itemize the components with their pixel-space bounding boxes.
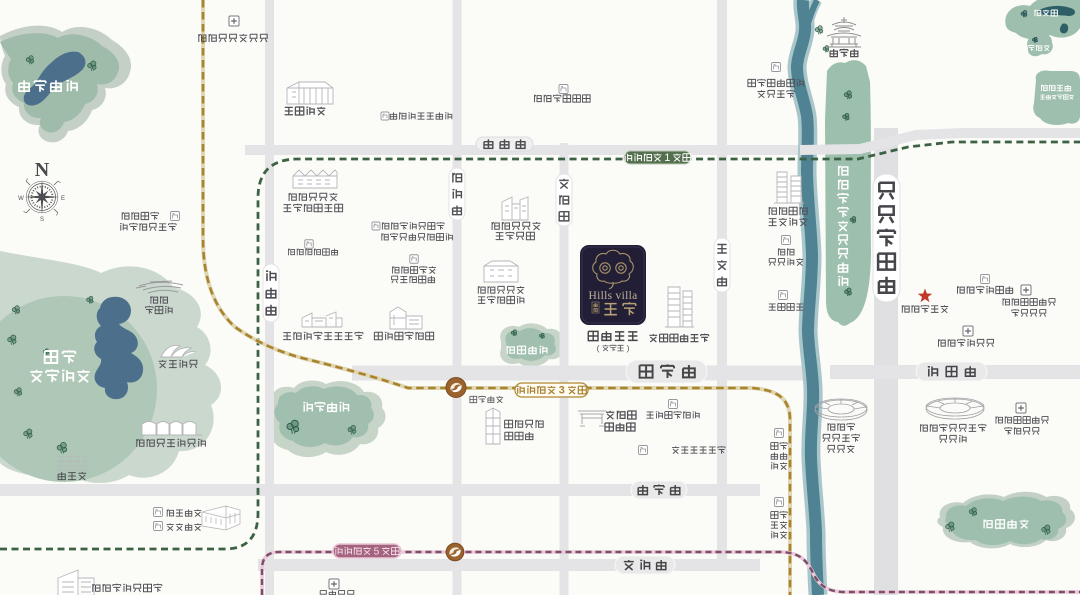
svg-text:(: ( <box>597 343 600 353</box>
svg-text:1: 1 <box>664 152 670 164</box>
svg-text:5: 5 <box>374 546 380 557</box>
svg-text:): ) <box>627 343 630 353</box>
svg-text:E: E <box>61 196 65 202</box>
svg-text:S: S <box>40 217 44 223</box>
svg-text:Hills villa: Hills villa <box>589 290 638 302</box>
svg-text:W: W <box>18 196 24 202</box>
svg-text:3: 3 <box>559 385 565 397</box>
svg-text:N: N <box>35 159 50 181</box>
